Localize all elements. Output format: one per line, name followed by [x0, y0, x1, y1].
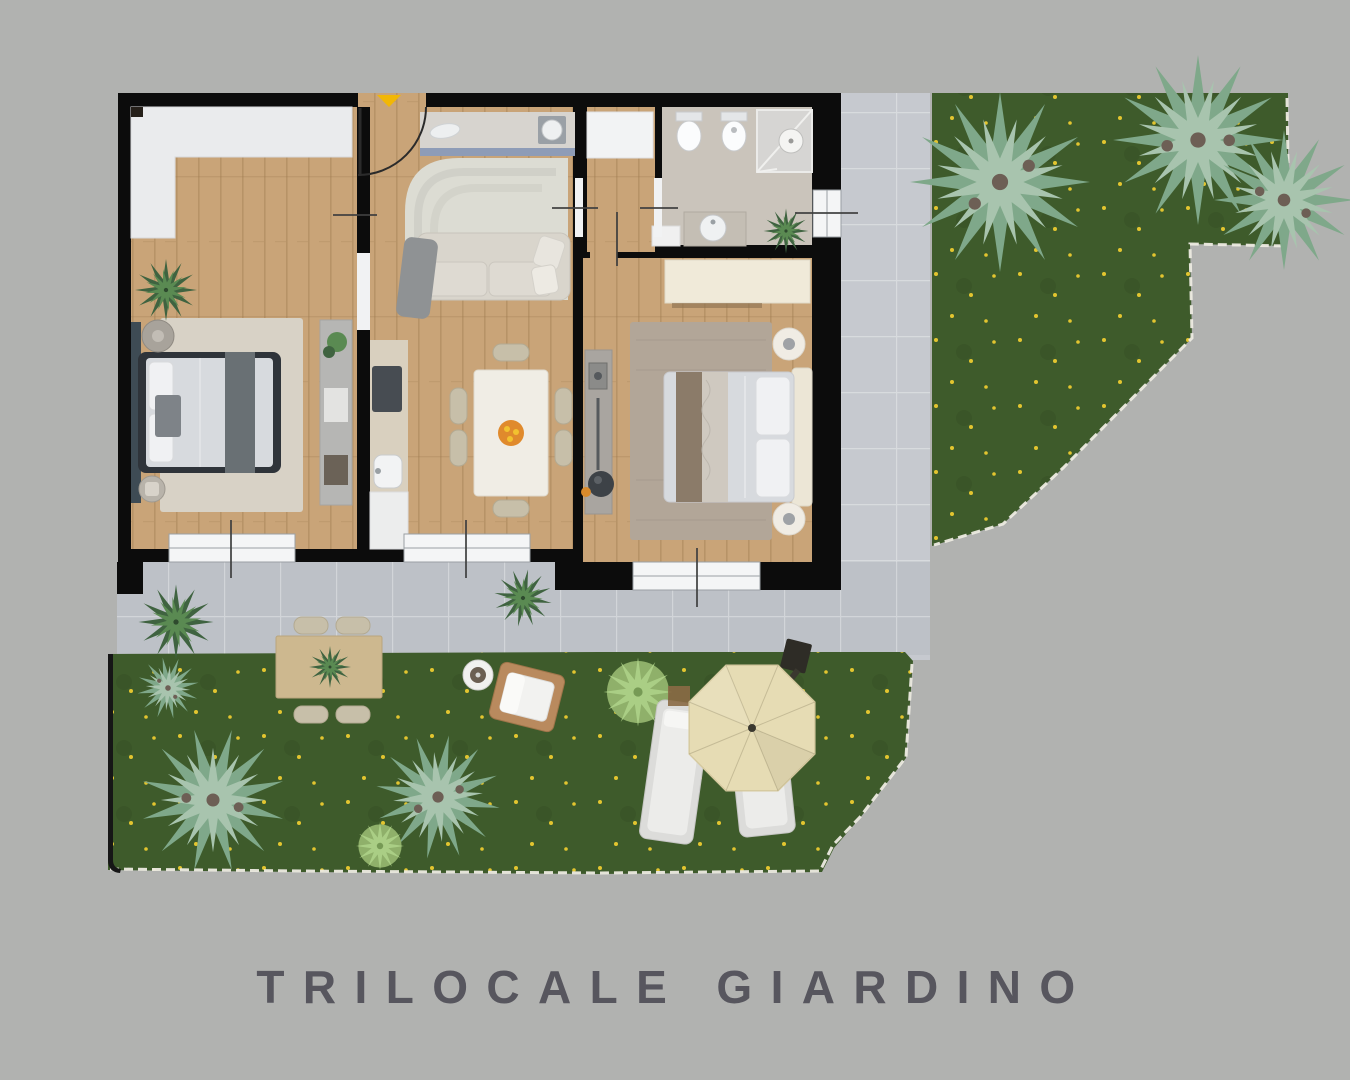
shelving-unit [320, 320, 352, 505]
kitchen-top-counter [420, 112, 575, 156]
plan-title: TRILOCALE GIARDINO [0, 960, 1350, 1014]
wardrobe [665, 260, 810, 303]
nightstand [142, 320, 174, 352]
double-bed [138, 352, 281, 473]
toilet [676, 112, 702, 151]
nightstand [773, 328, 805, 360]
floor-plan-graphic [0, 0, 1350, 1080]
bidet [721, 112, 747, 151]
outdoor-side-table [463, 660, 493, 690]
pouf [139, 476, 165, 502]
headboard [792, 368, 812, 506]
vanity-sink [684, 212, 746, 246]
double-bed [664, 368, 812, 506]
wall-stub [117, 562, 143, 594]
nightstand [773, 503, 805, 535]
console-desk [581, 350, 614, 514]
hall-closet [587, 112, 653, 158]
shower [757, 110, 812, 172]
fruit-bowl [498, 420, 524, 446]
floor-plan-page: TRILOCALE GIARDINO [0, 0, 1350, 1080]
stool [588, 471, 614, 497]
kitchen-side-counter [370, 340, 408, 549]
